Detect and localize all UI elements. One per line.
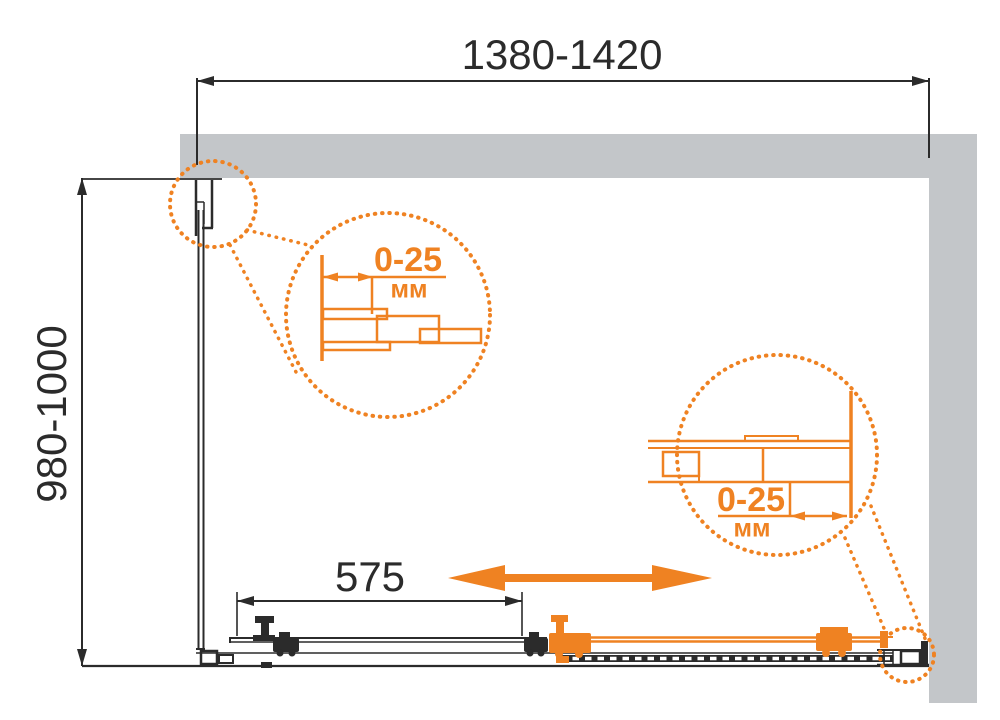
wall-top-band [180, 134, 977, 178]
arrowhead-right-icon [505, 596, 522, 606]
depth-dimension [77, 178, 222, 666]
detail-left-unit-label: мм [391, 278, 428, 303]
bottom-corner-profile [196, 649, 233, 664]
arrowhead-left-icon [237, 596, 254, 606]
depth-dimension-label: 980-1000 [31, 325, 73, 503]
width-dimension-label: 1380-1420 [462, 34, 663, 76]
arrowhead-left-icon [197, 76, 214, 86]
wall-l-shape [180, 134, 977, 703]
detail-right-range-label: 0-25 [717, 483, 785, 517]
callout-circles [170, 161, 934, 682]
wall-right-band [929, 134, 977, 703]
shower-enclosure-dimension-diagram: 1380-1420 980-1000 575 0-25 мм 0-25 мм [0, 0, 1000, 720]
arrowhead-up-icon [77, 178, 87, 195]
detail-circle-right [677, 355, 877, 555]
detail-left-range-label: 0-25 [374, 243, 442, 277]
door-dimension-label: 575 [335, 556, 405, 598]
slide-direction-arrow-icon [448, 565, 712, 591]
arrowhead-right-icon [832, 512, 847, 521]
arrowhead-left-icon [323, 273, 338, 282]
arrowhead-right-icon [912, 76, 929, 86]
detail-right-unit-label: мм [734, 517, 771, 542]
arrowhead-down-icon [77, 649, 87, 666]
fixed-bottom-panel [230, 616, 548, 668]
arrowhead-left-icon [790, 512, 805, 521]
diagram-linework [0, 0, 1000, 720]
side-glass-panel [196, 180, 233, 664]
